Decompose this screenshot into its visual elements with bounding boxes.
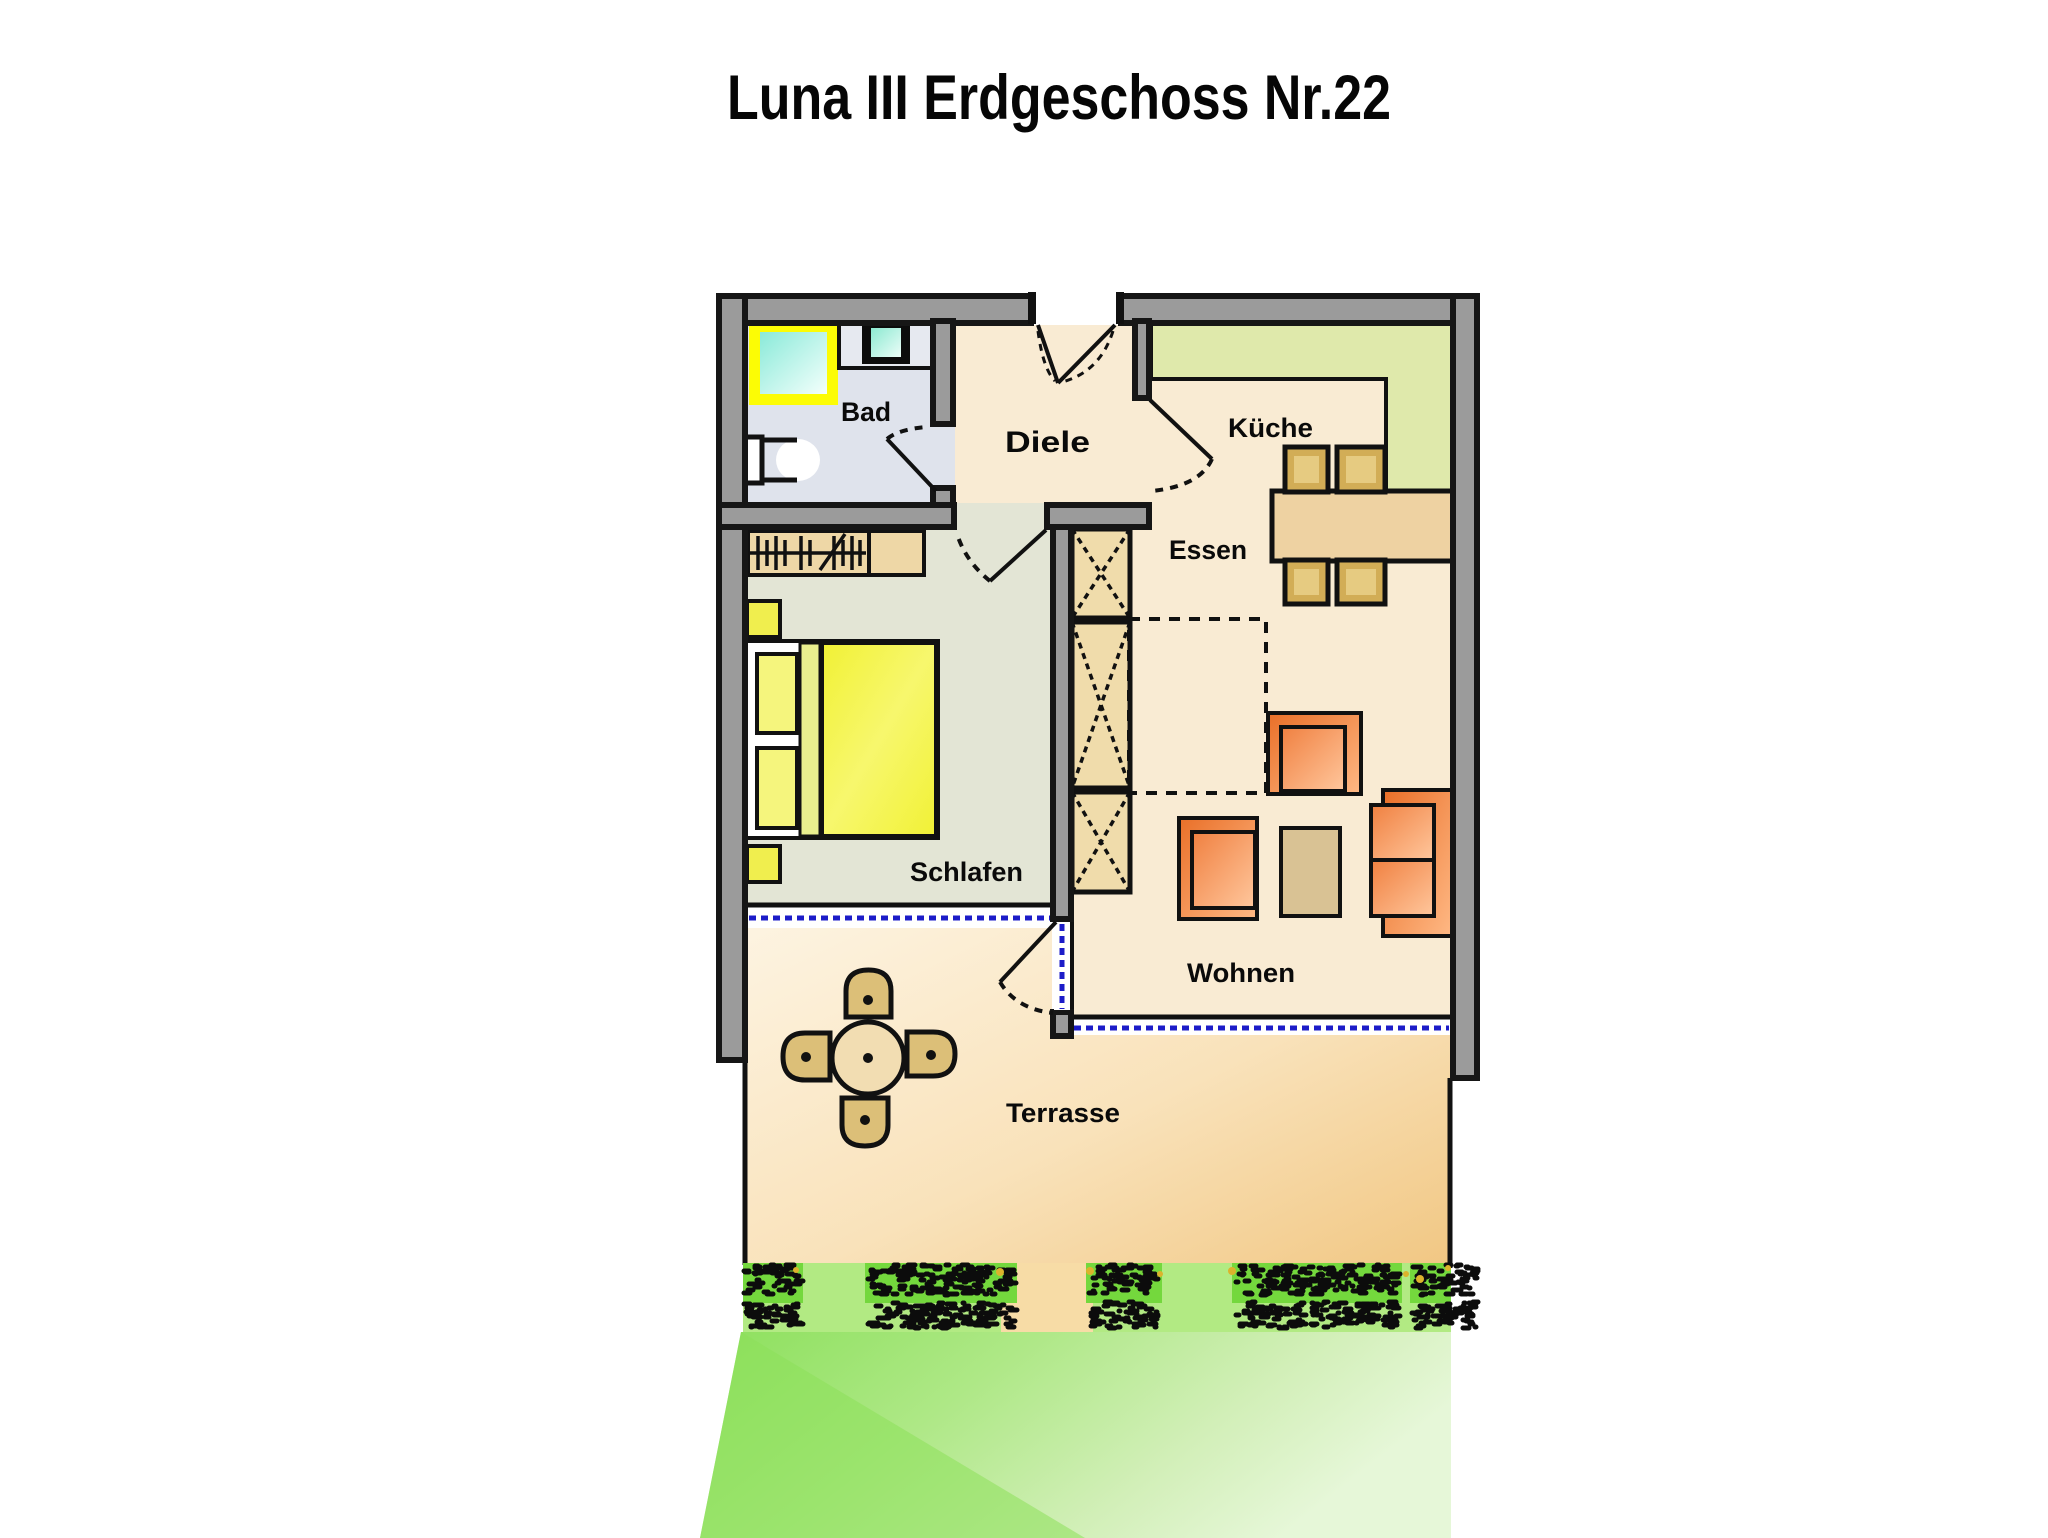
svg-text:Bad: Bad <box>841 397 891 427</box>
svg-text:Schlafen: Schlafen <box>910 857 1023 887</box>
svg-text:Luna III Erdgeschoss Nr.22: Luna III Erdgeschoss Nr.22 <box>727 63 1391 133</box>
svg-text:Essen: Essen <box>1169 535 1247 565</box>
svg-text:Terrasse: Terrasse <box>1006 1098 1120 1128</box>
svg-text:Küche: Küche <box>1228 413 1313 443</box>
svg-text:Diele: Diele <box>1005 426 1090 459</box>
svg-text:Wohnen: Wohnen <box>1187 958 1295 988</box>
